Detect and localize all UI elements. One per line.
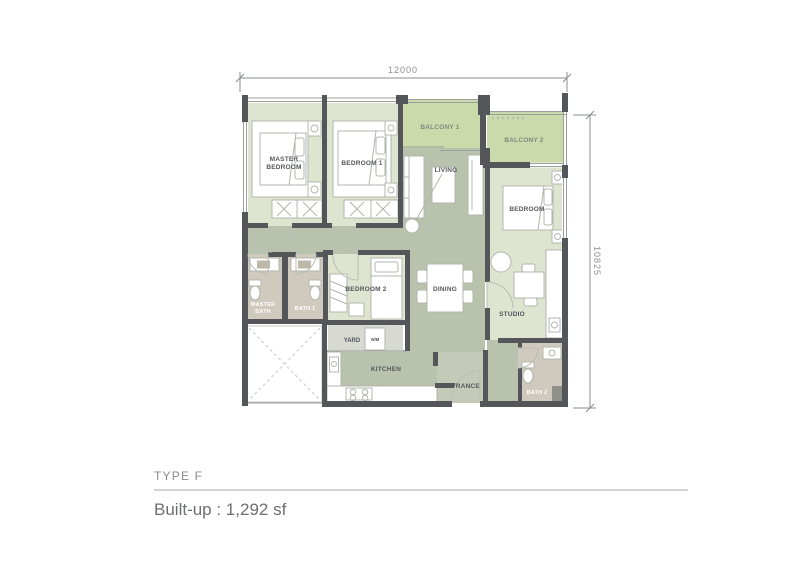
label-dining: DINING (433, 286, 457, 293)
label-master-bedroom-line2: BEDROOM (266, 164, 301, 171)
label-balcony2: BALCONY 2 (504, 137, 543, 144)
label-balcony1: BALCONY 1 (420, 124, 459, 131)
label-wm: W/M (371, 337, 380, 342)
dimension-top-value: 12000 (388, 65, 418, 75)
label-bath1: BATH 1 (295, 306, 316, 312)
corridor (246, 226, 487, 254)
footer: TYPE F Built-up : 1,292 sf (154, 469, 688, 519)
dimension-top: 12000 (236, 65, 571, 92)
void-area (247, 326, 322, 402)
builtup-label: Built-up : 1,292 sf (154, 500, 287, 519)
room-entrance (437, 352, 485, 403)
label-living: LIVING (435, 167, 458, 174)
label-master-bath-line1: MASTER (251, 302, 275, 308)
label-yard: YARD (344, 338, 361, 344)
floor-plan: MASTER BEDROOM BEDROOM 1 BALCONY 1 BALCO… (0, 0, 800, 565)
label-master-bath-line2: BATH (255, 309, 271, 315)
dimension-right: 10825 (573, 111, 602, 412)
dimension-right-value: 10825 (592, 246, 602, 276)
label-kitchen: KITCHEN (371, 366, 401, 373)
label-bath2: BATH 2 (527, 390, 548, 396)
label-bedroom: BEDROOM (509, 206, 544, 213)
label-master-bedroom-line1: MASTER (270, 156, 299, 163)
label-entrance: ENTRANCE (442, 383, 480, 390)
bath2-hall (487, 340, 518, 403)
type-label: TYPE F (154, 469, 203, 483)
label-studio: STUDIO (499, 311, 525, 318)
label-bedroom2: BEDROOM 2 (345, 286, 386, 293)
label-bedroom1: BEDROOM 1 (341, 160, 382, 167)
